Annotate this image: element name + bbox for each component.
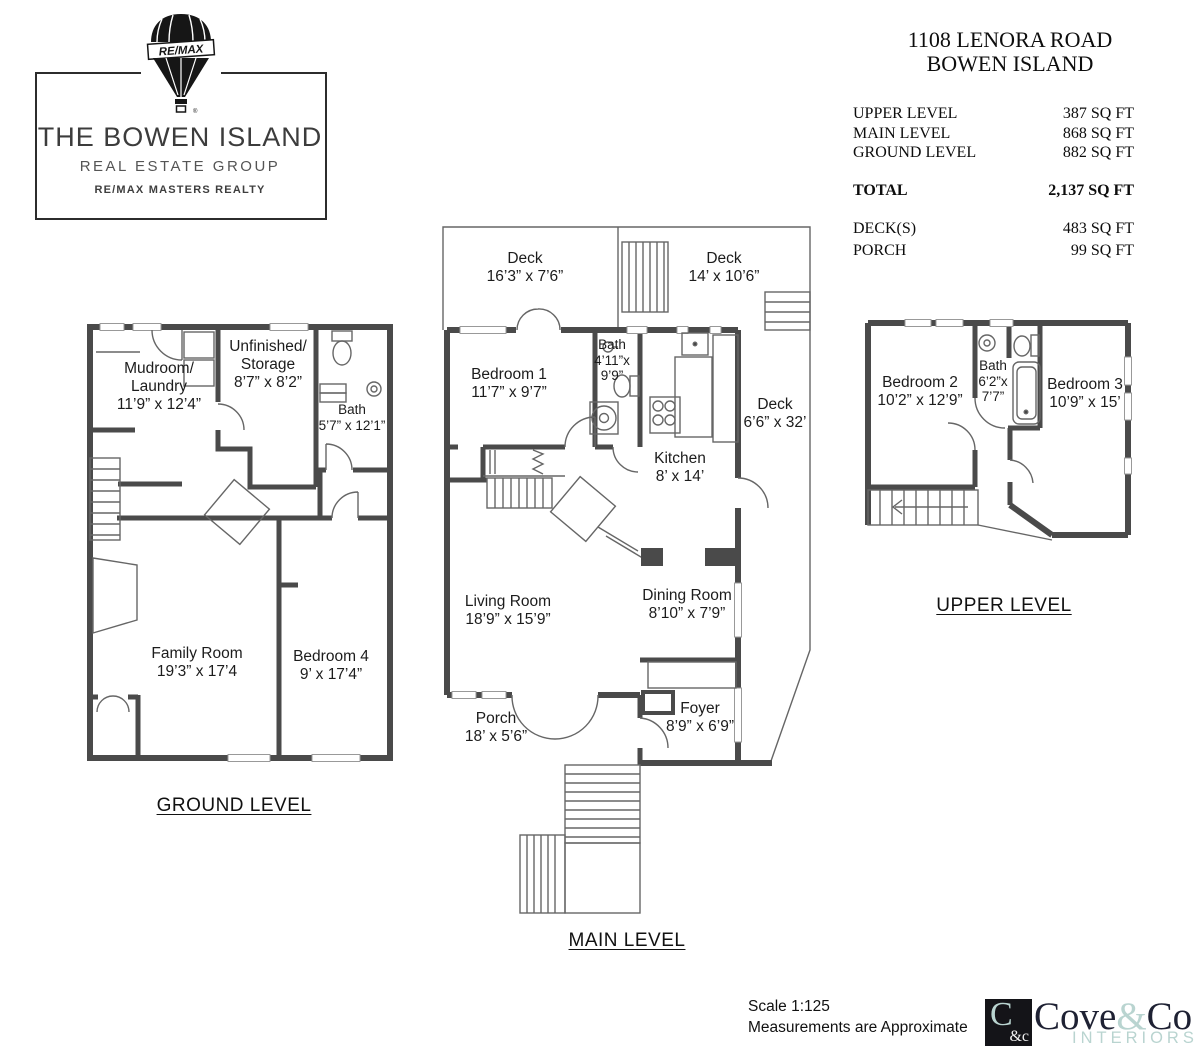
area-row-ground: GROUND LEVEL 882 SQ FT — [853, 143, 1134, 163]
measurements-note: Measurements are Approximate — [748, 1017, 968, 1038]
room-label-bedroom-4: Bedroom 4 9’ x 17’4” — [293, 648, 369, 684]
deck-steps-right — [765, 292, 810, 330]
entry-stairs — [520, 765, 640, 913]
room-label-bedroom-3: Bedroom 3 10’9” x 15’ — [1047, 376, 1123, 412]
bedroom1-closet — [483, 450, 565, 476]
ground-bath-fixtures — [320, 331, 381, 402]
room-label-dining-room: Dining Room 8’10” x 7’9” — [642, 587, 732, 623]
address-line2: BOWEN ISLAND — [860, 52, 1160, 76]
kitchen-counter — [713, 335, 738, 442]
area-row-total: TOTAL 2,137 SQ FT — [853, 181, 1134, 201]
room-label-deck-right: Deck 14’ x 10’6” — [689, 250, 760, 286]
org-name: THE BOWEN ISLAND — [38, 122, 323, 153]
area-row-main: MAIN LEVEL 868 SQ FT — [853, 124, 1134, 144]
bay-feature — [93, 558, 137, 633]
sink-icon — [979, 335, 995, 351]
area-row-porch: PORCH 99 SQ FT — [853, 240, 1134, 262]
room-label-deck-left: Deck 16’3” x 7’6” — [487, 250, 564, 286]
room-label-unfinished-storage: Unfinished/ Storage 8’7” x 8’2” — [229, 338, 307, 392]
upper-outer-walls — [868, 323, 1128, 535]
svg-text:®: ® — [193, 108, 198, 115]
fireplace-right — [705, 548, 737, 566]
room-label-bath-ground: Bath 5’7” x 12’1” — [319, 402, 386, 433]
main-level-title: MAIN LEVEL — [569, 930, 686, 952]
address-line1: 1108 LENORA ROAD — [860, 28, 1160, 52]
deck-side-door-gap — [733, 478, 742, 508]
coveco-mark-amp: &c — [1009, 1028, 1029, 1046]
room-label-living-room: Living Room 18’9” x 15’9” — [465, 593, 551, 629]
ground-level-title: GROUND LEVEL — [157, 795, 312, 817]
deck-stairs — [622, 242, 668, 312]
room-label-bath-upper: Bath 6’2”x 7’7” — [978, 358, 1007, 405]
room-label-deck-side: Deck 6’6” x 32’ — [744, 396, 807, 432]
coveco-tagline: INTERIORS — [1072, 1029, 1198, 1048]
area-table: UPPER LEVEL 387 SQ FT MAIN LEVEL 868 SQ … — [853, 104, 1134, 261]
scale-note: Scale 1:125 Measurements are Approximate — [748, 996, 968, 1038]
interior-staircase — [487, 477, 646, 560]
org-subtitle: REAL ESTATE GROUP — [80, 158, 281, 175]
toilet-icon — [332, 331, 352, 341]
room-label-kitchen: Kitchen 8’ x 14’ — [654, 450, 706, 486]
sink-icon — [367, 382, 381, 396]
kitchen-fixtures — [650, 333, 738, 442]
floorplan-flyer: .w{stroke:#4a4a4a;stroke-width:6;fill:no… — [0, 0, 1200, 1061]
ground-stairs — [90, 458, 120, 540]
org-brand: RE/MAX MASTERS REALTY — [94, 184, 265, 196]
room-label-porch: Porch 18’ x 5’6” — [465, 710, 527, 746]
upper-level-floorplan — [868, 320, 1132, 541]
room-label-family-room: Family Room 19’3” x 17’4 — [151, 645, 242, 681]
main-level-floorplan — [443, 227, 810, 913]
area-row-decks: DECK(S) 483 SQ FT — [853, 218, 1134, 240]
dining-bay — [648, 662, 736, 688]
toilet-icon — [1014, 336, 1030, 356]
area-row-upper: UPPER LEVEL 387 SQ FT — [853, 104, 1134, 124]
upper-door-arcs — [948, 398, 1033, 483]
fireplace-left — [641, 548, 663, 566]
room-label-foyer: Foyer 8’9” x 6’9” — [666, 700, 734, 736]
remax-balloon-icon: RE/MAX ® — [145, 12, 217, 116]
room-label-bedroom-1: Bedroom 1 11’7” x 9’7” — [471, 366, 547, 402]
coveco-logo-mark: C &c — [985, 999, 1032, 1046]
room-label-bath-main: Bath 4’11”x 9’9” — [594, 337, 630, 384]
upper-level-title: UPPER LEVEL — [936, 595, 1071, 617]
property-address: 1108 LENORA ROAD BOWEN ISLAND — [860, 28, 1160, 76]
room-label-bedroom-2: Bedroom 2 10’2” x 12’9” — [877, 374, 962, 410]
main-deck-outline — [443, 227, 810, 761]
room-label-mudroom-laundry: Mudroom/ Laundry 11’9” x 12’4” — [117, 360, 201, 414]
deck-door-gap — [516, 325, 561, 334]
scale-text: Scale 1:125 — [748, 996, 968, 1017]
